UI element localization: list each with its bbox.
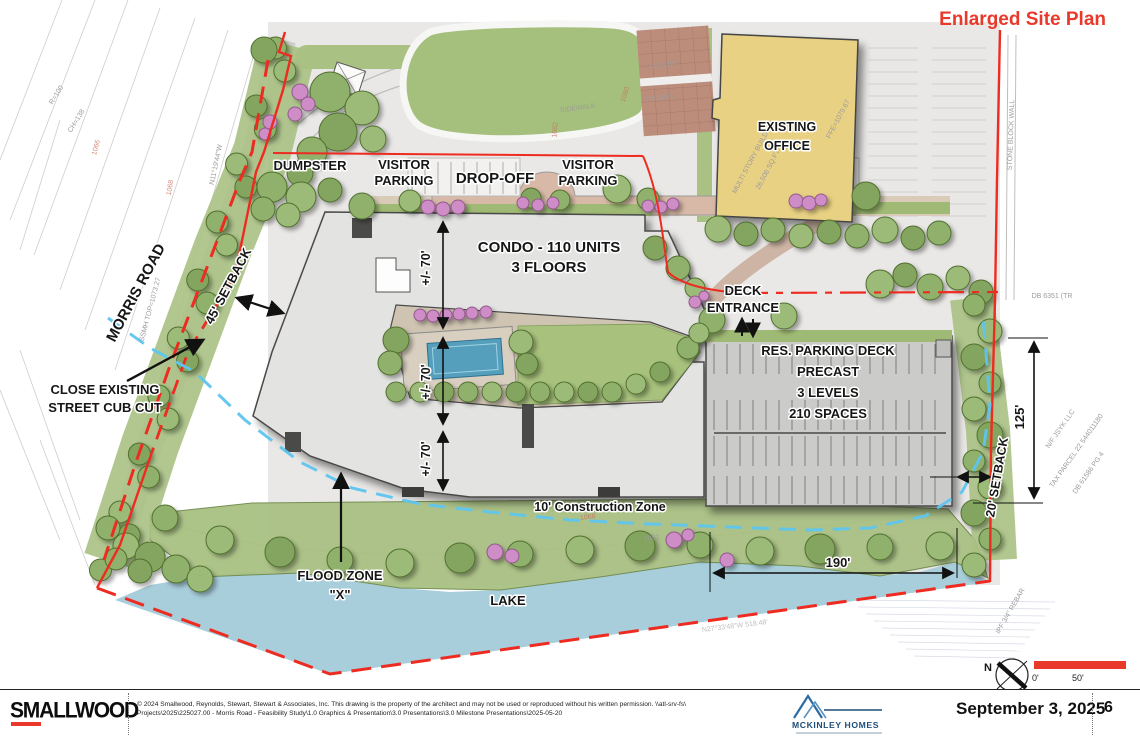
site-plan-slide: R=100 CH=138 N11°19'44"W SSMH TOP=1073.2… [0,0,1140,738]
close-curb-label-1: CLOSE EXISTING [50,382,159,397]
visitor-parking-left-label-2: PARKING [375,173,434,188]
condo-entry-mark-2 [598,487,620,497]
visitor-parking-left-label-1: VISITOR [378,157,430,172]
visitor-parking-right-label-1: VISITOR [562,157,614,172]
mckinley-homes-logo: MCKINLEY HOMES [786,692,896,738]
deck-label-2: PRECAST [797,364,859,379]
visitor-parking-right-label-2: PARKING [559,173,618,188]
condo-bottom-notch [285,432,301,452]
copyright-text: © 2024 Smallwood, Reynolds, Stewart, Ste… [137,701,697,718]
north-label: N [984,662,992,674]
condo-facade-notch [352,218,372,238]
db-6351-label: DB 6351 (TR [1032,293,1073,300]
office-label-1: EXISTING [758,120,816,134]
drop-off-label: DROP-OFF [456,170,534,187]
site-plan-drawing: R=100 CH=138 N11°19'44"W SSMH TOP=1073.2… [0,0,1140,690]
scale-zero-label: 0' [1032,673,1039,683]
flood-zone-label-2: "X" [330,587,351,602]
morris-road-label: MORRIS ROAD [103,241,169,345]
north-arrow: N [984,659,1028,690]
scale-bar: 0' 50' [1032,661,1126,683]
nf-label-3: DB 61586 PG 4 [1072,451,1106,495]
survey-curve-r: R=100 [48,84,65,105]
page-number: 6 [1104,699,1113,717]
deck-label-3: 3 LEVELS [797,385,859,400]
contour-1082: 1082 [551,122,559,138]
flood-zone-label-1: FLOOD ZONE [297,568,383,583]
mckinley-name: MCKINLEY HOMES [792,720,879,730]
deck-stair [936,340,951,357]
smallwood-logo: SMALLWOOD [10,698,138,723]
deck-entrance-label-2: ENTRANCE [707,300,780,315]
close-curb-label-2: STREET CUB CUT [48,400,161,415]
ipf-label: IPF 3/4" REBAR [995,587,1027,635]
contour-1066: 1066 [91,139,102,156]
condo-label-1: CONDO - 110 UNITS [478,239,621,256]
survey-hatch-bottom-right [850,600,1055,658]
dim-125-label: 125' [1012,405,1027,430]
parking-deck [706,336,952,506]
copyright-line-2: Projects\2025\225027.00 - Morris Road - … [137,710,697,719]
deck-label-1: RES. PARKING DECK [761,343,895,358]
page-title: Enlarged Site Plan [939,9,1106,30]
scale-fifty-label: 50' [1072,673,1084,683]
drawing-date: September 3, 2025 [956,699,1105,719]
courtyard-wall-stub [522,404,534,448]
footer-separator-1 [128,693,129,735]
lake-label: LAKE [490,593,526,608]
dim-70-mid-label: +/- 70' [419,364,433,399]
condo-label-2: 3 FLOORS [511,259,586,276]
paver-plaza [636,26,715,137]
construction-zone-label: 10' Construction Zone [534,500,665,514]
copyright-line-1: © 2024 Smallwood, Reynolds, Stewart, Ste… [137,701,697,710]
park-lawn [403,24,649,139]
dim-70-top-label: +/- 70' [419,250,433,285]
condo-entry-mark [402,487,424,497]
footer-separator-2 [1092,693,1093,735]
title-block-footer: SMALLWOOD © 2024 Smallwood, Reynolds, St… [0,689,1140,738]
nf-label-1: N/F JSYK LLC [1045,408,1077,449]
deck-label-4: 210 SPACES [789,406,867,421]
dim-70-bottom-label: +/- 70' [419,441,433,476]
nf-label-2: TAX PARCEL 22 544011180 [1049,413,1105,489]
dim-190-label: 190' [826,555,851,570]
mckinley-tagline [796,732,882,734]
dumpster-label: DUMPSTER [274,158,348,173]
office-label-2: OFFICE [764,139,810,153]
smallwood-logo-underline [11,722,41,726]
deck-entrance-label-1: DECK [725,283,762,298]
